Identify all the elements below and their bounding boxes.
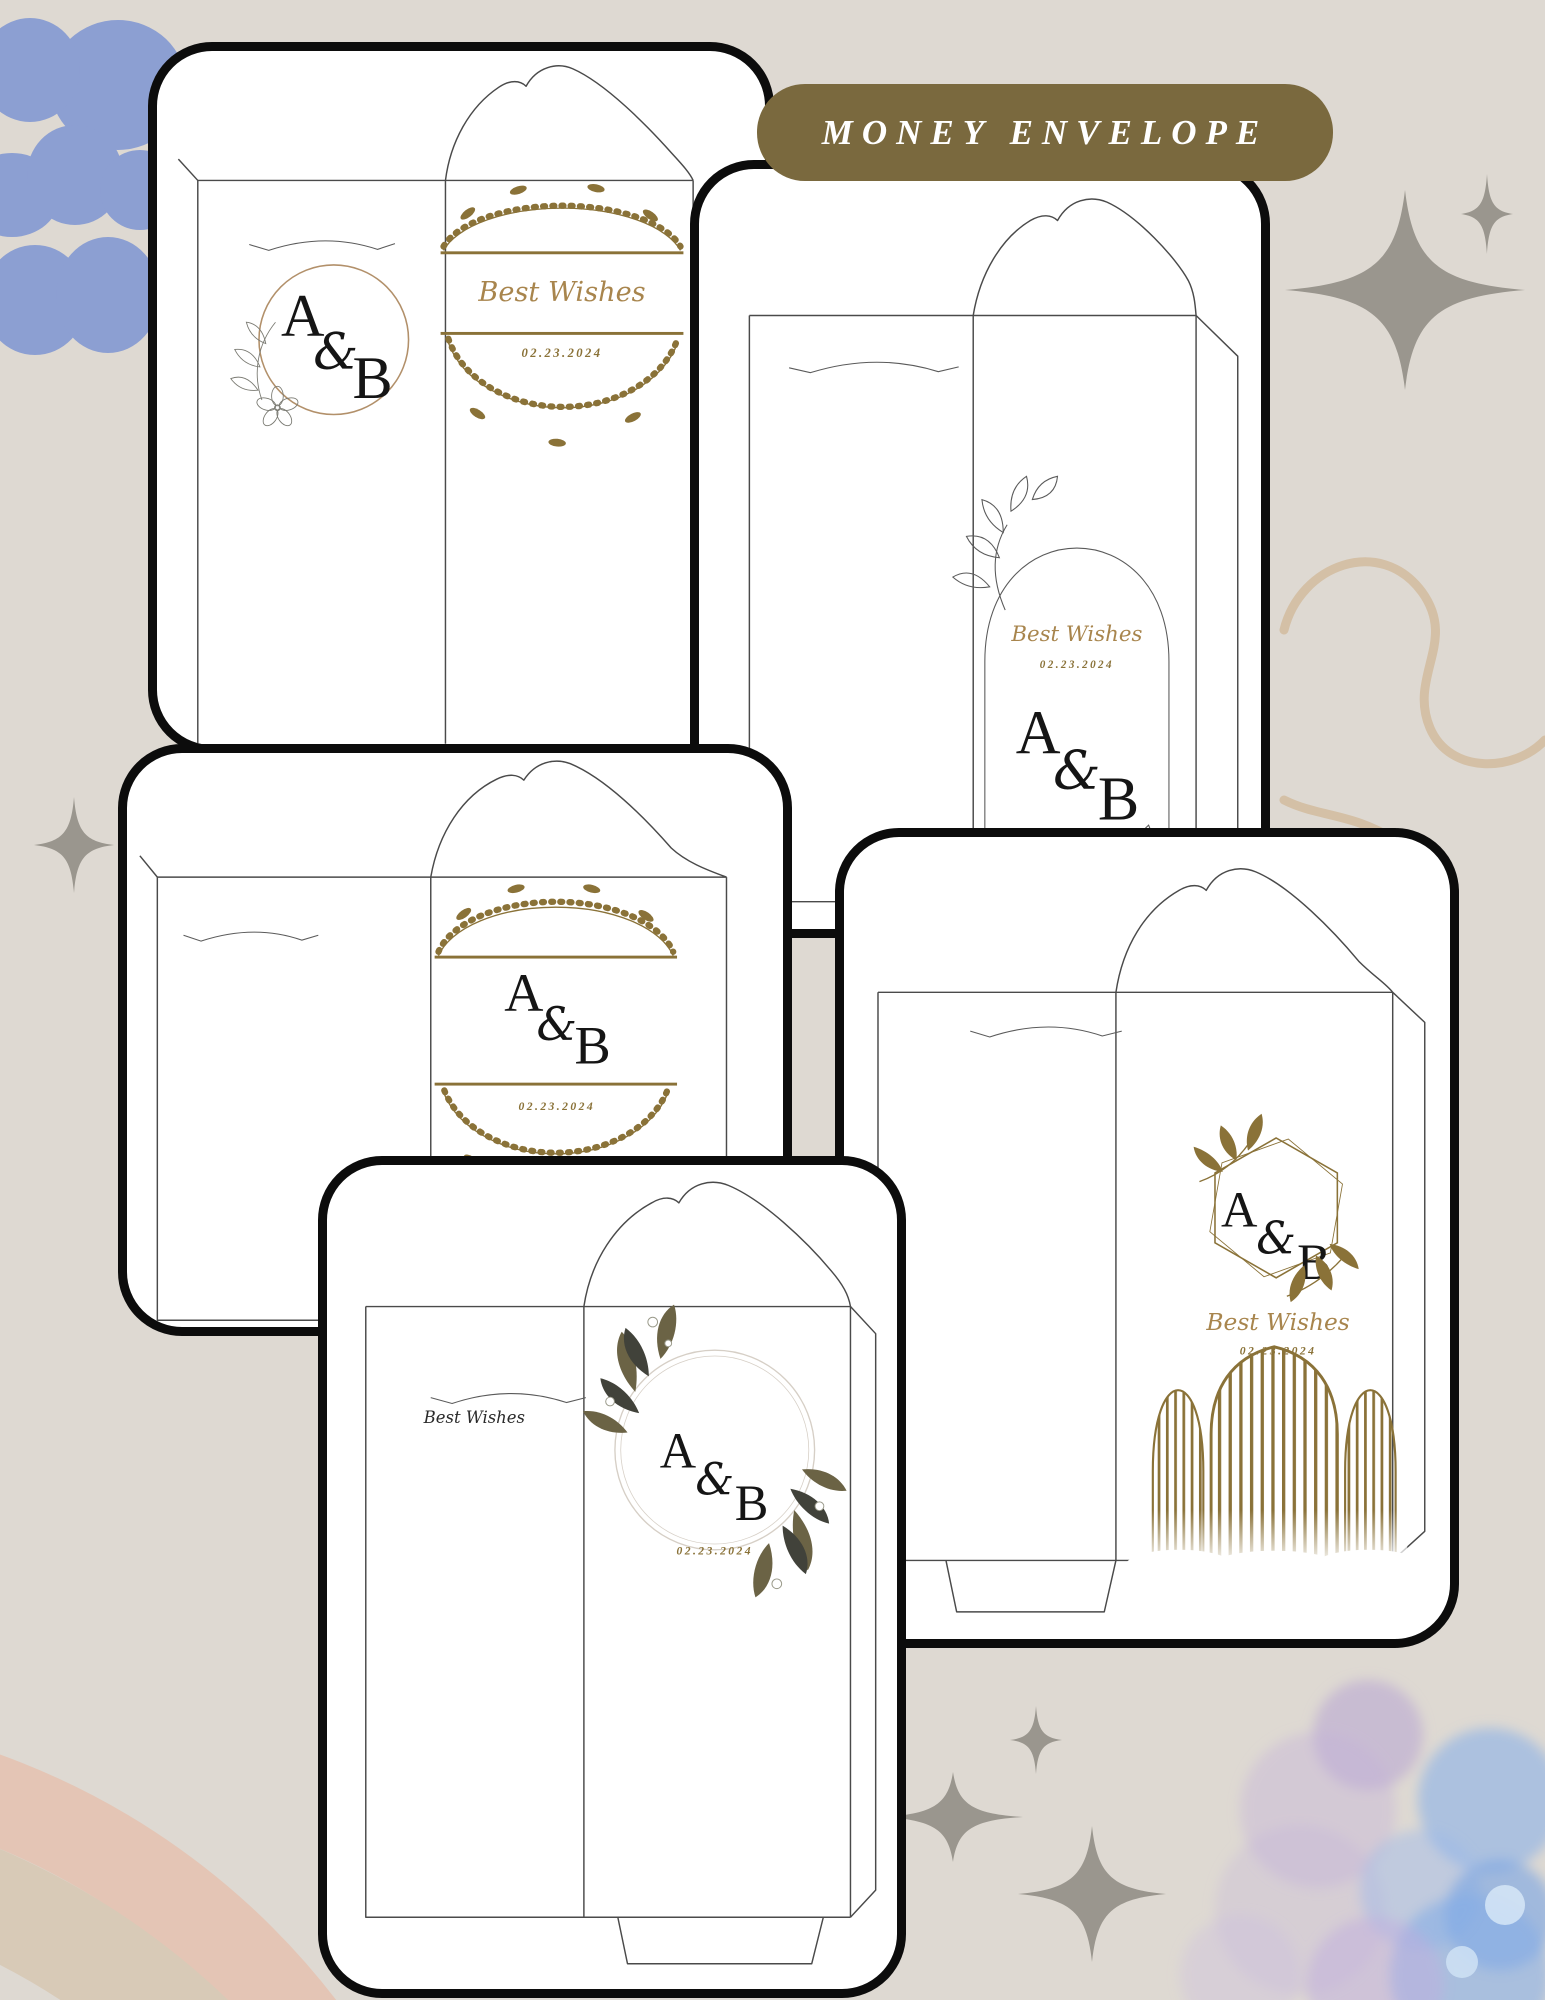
ampersand-text: &	[695, 1456, 734, 1506]
money-envelope-badge: MONEY ENVELOPE	[757, 84, 1333, 181]
squiggle-line-icon	[1284, 562, 1545, 842]
circle-leaf-wreath-design: A & B 02.23.2024	[583, 1305, 847, 1598]
date-text: 02.23.2024	[521, 346, 602, 360]
floral-wreath-design: Best Wishes 02.23.2024	[441, 183, 684, 448]
art-deco-gate-icon	[1126, 1347, 1422, 1586]
leaf-cluster-icon	[583, 1305, 676, 1433]
monogram-b-text: B	[353, 345, 393, 412]
hexagon-monogram-design: A & B Best Wishes 02.23.2024	[1194, 1114, 1359, 1358]
thumb-notch	[789, 362, 959, 372]
greeting-script: Best Wishes	[1205, 1309, 1349, 1336]
ampersand-text: &	[313, 322, 358, 381]
monogram-b-text: B	[1098, 765, 1139, 833]
greeting-script: Best Wishes	[477, 277, 645, 308]
envelope-template-4: Best Wishes A & B 02.23.2024	[318, 1156, 906, 1998]
monogram-b-text: B	[575, 1015, 611, 1075]
monogram-a-text: A	[1221, 1181, 1258, 1237]
circle-monogram-wreath: A & B	[231, 265, 409, 428]
ampersand-text: &	[1053, 739, 1100, 801]
envelope-template-1: A & B Best Wishes 02.23.2024	[148, 42, 774, 754]
split-wreath-monogram: A & B 02.23.2024	[435, 883, 677, 1192]
thumb-notch	[431, 1394, 586, 1404]
die-template-outline	[749, 199, 1237, 926]
date-text: 02.23.2024	[519, 1100, 596, 1113]
date-text: 02.23.2024	[676, 1545, 753, 1558]
thumb-notch	[249, 241, 395, 250]
greeting-script: Best Wishes	[1010, 622, 1142, 647]
die-template-outline	[878, 869, 1425, 1612]
die-template-outline	[178, 66, 693, 744]
bokeh-circles-icon	[1180, 1680, 1545, 2000]
die-template-outline	[366, 1182, 876, 1963]
leaf-sprig-icon	[953, 476, 1058, 610]
envelope-template-5: A & B Best Wishes 02.23.2024	[835, 828, 1459, 1648]
monogram-a-text: A	[660, 1422, 697, 1478]
badge-label: MONEY ENVELOPE	[822, 113, 1269, 153]
thumb-notch	[970, 1027, 1122, 1037]
date-text: 02.23.2024	[1040, 659, 1114, 671]
panel-greeting-script: Best Wishes	[423, 1408, 525, 1427]
ampersand-text: &	[1256, 1213, 1296, 1265]
thumb-notch	[184, 932, 319, 941]
gold-leaf-sprig-icon	[1194, 1114, 1263, 1182]
monogram-b-text: B	[735, 1475, 769, 1531]
ampersand-text: &	[537, 998, 578, 1051]
